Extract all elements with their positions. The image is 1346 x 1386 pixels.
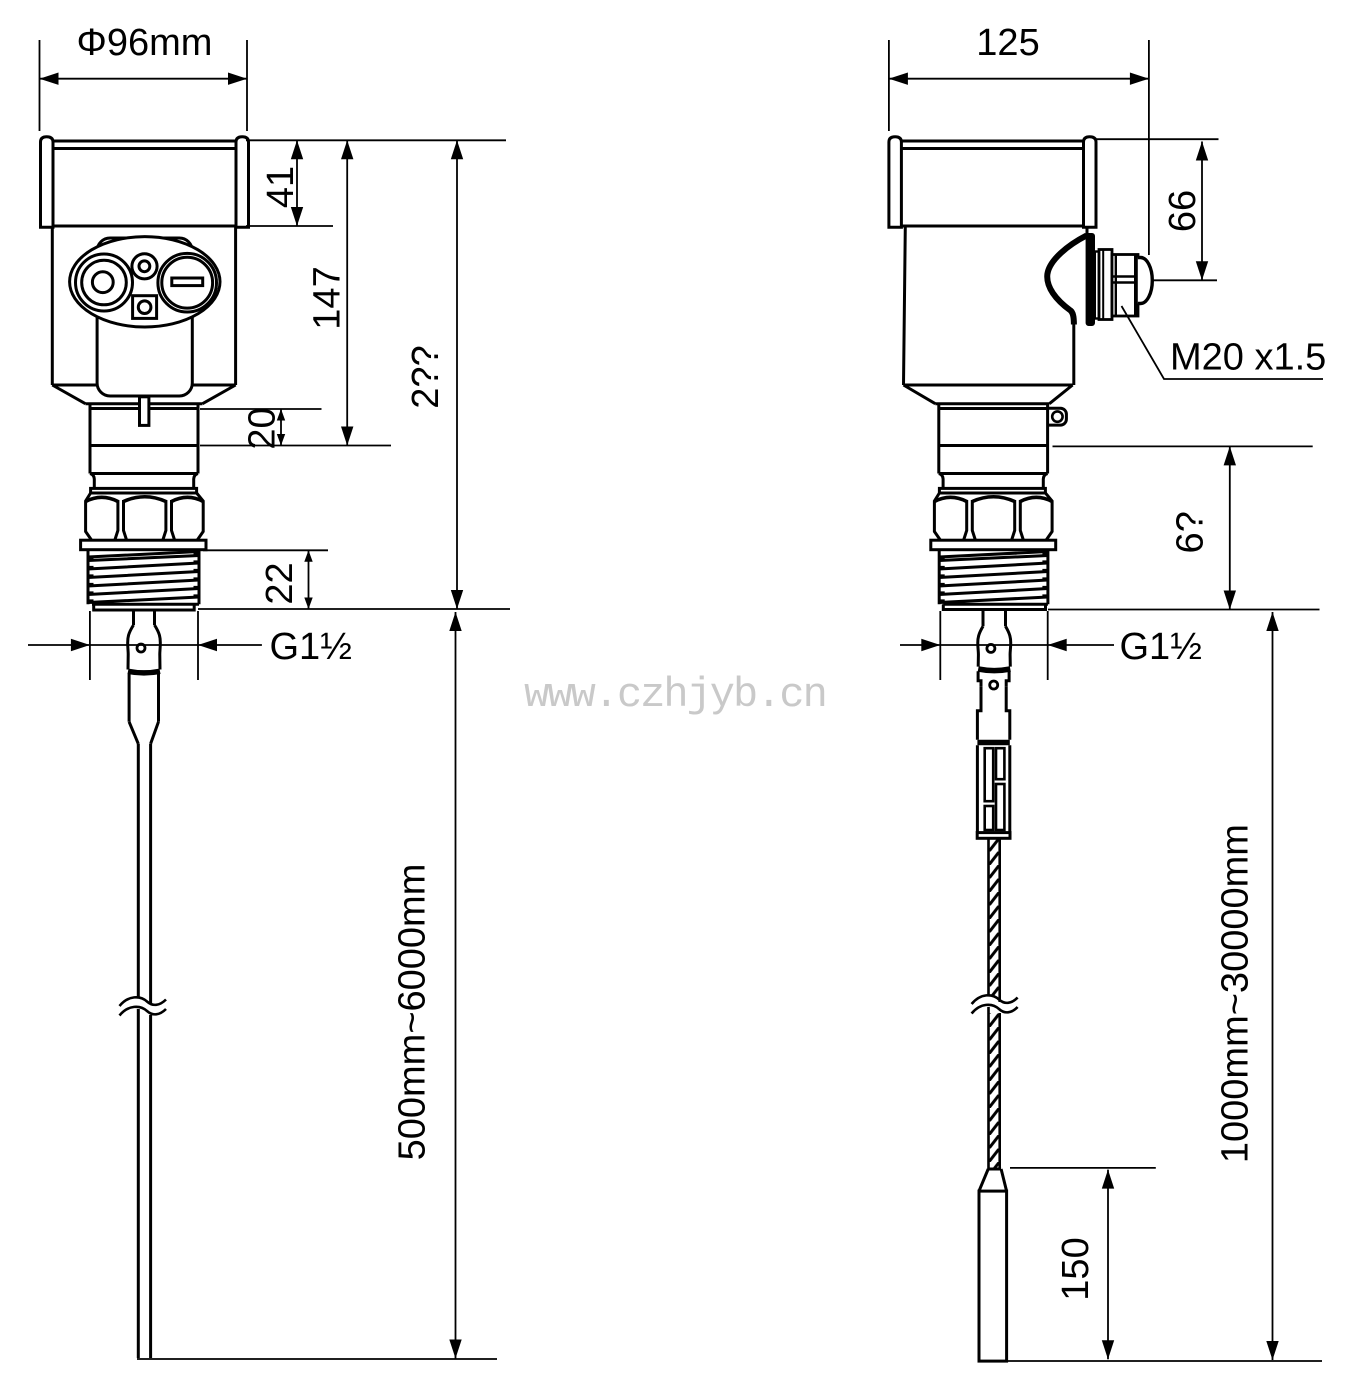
svg-text:Φ96mm: Φ96mm xyxy=(77,22,213,64)
svg-text:500mm~6000mm: 500mm~6000mm xyxy=(392,864,434,1161)
svg-text:22: 22 xyxy=(259,562,301,604)
svg-text:M20 x1.5: M20 x1.5 xyxy=(1170,337,1326,379)
svg-text:G1½: G1½ xyxy=(270,626,352,668)
svg-text:41: 41 xyxy=(260,166,302,208)
svg-text:2??: 2?? xyxy=(405,345,447,408)
svg-text:G1½: G1½ xyxy=(1120,626,1202,668)
svg-text:6?: 6? xyxy=(1170,511,1212,553)
svg-text:147: 147 xyxy=(307,266,349,329)
svg-text:125: 125 xyxy=(976,22,1039,64)
svg-text:150: 150 xyxy=(1055,1237,1097,1300)
svg-text:www.czhjyb.cn: www.czhjyb.cn xyxy=(524,671,826,719)
svg-text:20: 20 xyxy=(242,407,284,449)
svg-text:1000mm~30000mm: 1000mm~30000mm xyxy=(1214,824,1256,1163)
svg-text:66: 66 xyxy=(1162,190,1204,232)
